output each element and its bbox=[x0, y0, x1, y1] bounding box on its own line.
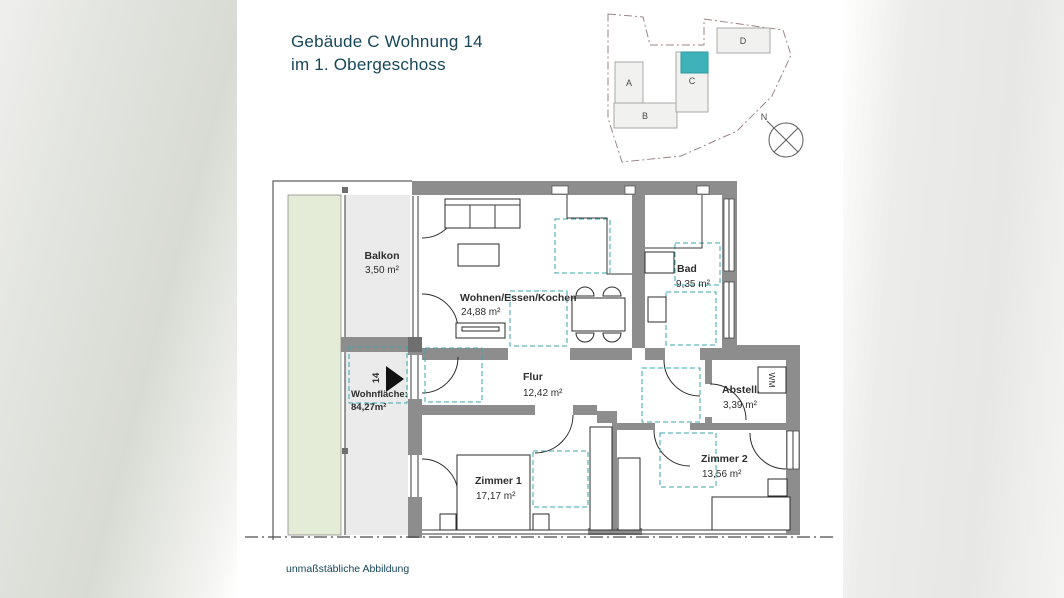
living-area-label: Wohnfläche: bbox=[351, 389, 408, 400]
building-c-label: C bbox=[689, 76, 696, 86]
floorplan-canvas: A B C D N bbox=[0, 0, 1064, 598]
compass-north-label: N bbox=[761, 112, 768, 122]
room-zimmer1-area: 17,17 m² bbox=[476, 491, 516, 502]
coffee-table bbox=[458, 244, 499, 266]
bath-fixtures bbox=[645, 195, 702, 322]
scale-disclaimer: unmaßstäbliche Abbildung bbox=[286, 563, 409, 575]
dining-table-with-chairs bbox=[572, 287, 625, 342]
room-abstell-area: 3,39 m² bbox=[723, 400, 758, 411]
building-c-highlight bbox=[681, 52, 708, 73]
room-zimmer1-name: Zimmer 1 bbox=[475, 475, 522, 487]
bed-zimmer2 bbox=[712, 479, 790, 530]
room-flur-name: Flur bbox=[523, 371, 543, 383]
building-a-label: A bbox=[626, 78, 632, 88]
room-bad-area: 9,35 m² bbox=[676, 279, 711, 290]
room-bad-name: Bad bbox=[677, 263, 697, 275]
room-zimmer2-name: Zimmer 2 bbox=[701, 453, 748, 465]
room-wohnen-area: 24,88 m² bbox=[461, 307, 501, 318]
room-balkon-name: Balkon bbox=[364, 250, 399, 262]
apartment-number: 14 bbox=[371, 372, 382, 383]
sofa bbox=[445, 199, 520, 228]
washing-machine-label: WM bbox=[767, 372, 777, 387]
garden-strip bbox=[288, 195, 341, 535]
room-wohnen-name: Wohnen/Essen/Kochen bbox=[460, 292, 577, 304]
wardrobe-zimmer2 bbox=[618, 458, 640, 530]
building-b-label: B bbox=[642, 111, 648, 121]
room-abstell-name: Abstell. bbox=[722, 384, 760, 396]
wardrobe-zimmer1 bbox=[590, 427, 612, 530]
compass-icon: N bbox=[761, 112, 803, 157]
room-zimmer2-area: 13,56 m² bbox=[702, 469, 742, 480]
room-flur-area: 12,42 m² bbox=[523, 388, 563, 399]
rail-post bbox=[342, 448, 348, 454]
living-area-value: 84,27m² bbox=[351, 402, 386, 413]
room-balkon-area: 3,50 m² bbox=[365, 265, 400, 276]
site-plan: A B C D N bbox=[608, 14, 803, 162]
building-d-label: D bbox=[740, 36, 747, 46]
floor-plan: WM 14 Balkon 3,50 m² Wohnen/Essen/Kochen bbox=[245, 181, 836, 540]
washing-machine: WM bbox=[758, 367, 786, 393]
rail-post bbox=[342, 187, 348, 193]
